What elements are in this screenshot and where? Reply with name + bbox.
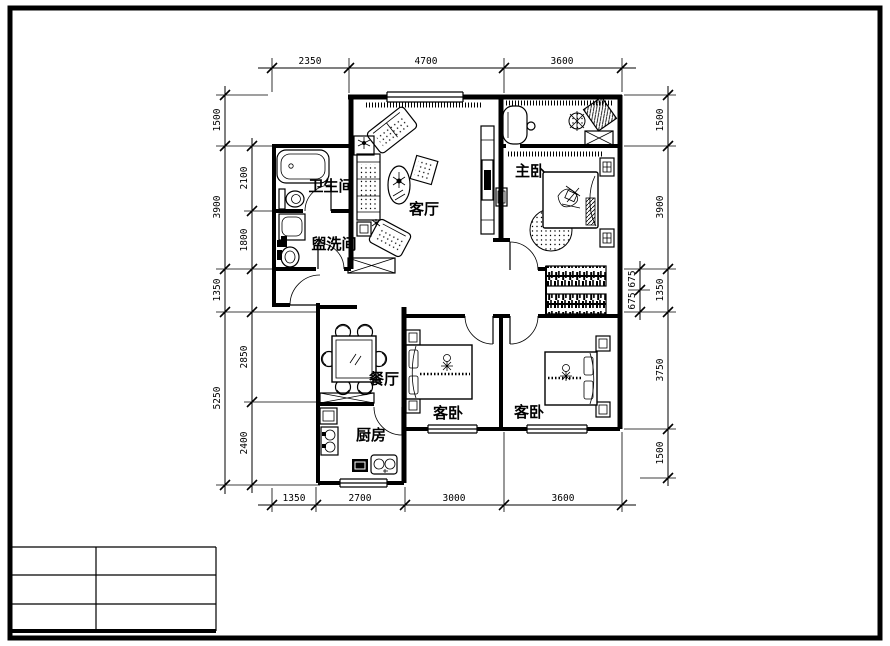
guest1-bed — [406, 345, 472, 399]
side-table-small — [357, 219, 380, 236]
room-label-bathroom: 卫生间 — [308, 177, 353, 195]
dim-label: 1350 — [212, 278, 223, 301]
wardrobe-row — [546, 266, 606, 286]
dim-label: 3000 — [443, 493, 466, 504]
dim-label: 1350 — [655, 278, 666, 301]
dim-label: 2850 — [239, 345, 250, 368]
toilet — [279, 189, 304, 209]
dim-label: 1500 — [655, 441, 666, 464]
master-bedroom-furniture — [496, 158, 614, 251]
dim-label: 3900 — [212, 195, 223, 218]
room-label-guest1: 客卧 — [432, 404, 463, 422]
room-label-dining: 餐厅 — [369, 370, 399, 388]
nightstand — [406, 330, 420, 345]
door-guest2 — [510, 316, 538, 344]
double-sink — [371, 455, 397, 474]
washing-machine — [279, 214, 305, 240]
nightstand — [600, 229, 614, 247]
room-label-living: 客厅 — [408, 200, 439, 218]
dim-label: 5250 — [212, 386, 223, 409]
counter-x — [320, 393, 374, 403]
drawing-sheet: 2350 4700 3600 1350 2700 3000 3600 1500 … — [0, 0, 890, 646]
dim-label: 1500 — [212, 108, 223, 131]
dim-label: 2700 — [349, 493, 372, 504]
dim-chain-right-inner: 675 675 — [627, 261, 650, 320]
nightstand — [600, 158, 614, 176]
wardrobes — [546, 266, 606, 314]
dim-label: 2350 — [299, 56, 322, 67]
side-table-plant — [354, 136, 374, 155]
dim-label: 3900 — [655, 195, 666, 218]
washbasin — [277, 240, 299, 267]
door-master — [510, 242, 538, 270]
dim-label: 1800 — [239, 228, 250, 251]
window-kitchen-bottom — [340, 479, 387, 487]
plant — [569, 111, 585, 131]
room-labels: 卫生间 盥洗间 客厅 主卧 餐厅 厨房 客卧 客卧 — [308, 162, 545, 444]
room-label-washroom: 盥洗间 — [311, 235, 356, 253]
sofa — [357, 154, 380, 220]
guest2-bed — [545, 352, 597, 405]
dim-label: 3600 — [552, 493, 575, 504]
dim-label: 3600 — [551, 56, 574, 67]
room-label-master: 主卧 — [515, 162, 545, 180]
washroom-fixtures — [277, 214, 305, 267]
coffee-table — [388, 166, 410, 204]
lounge-chair — [503, 106, 535, 144]
window-guest2-bottom — [527, 425, 587, 433]
dim-label: 4700 — [415, 56, 438, 67]
room-label-kitchen: 厨房 — [356, 426, 386, 444]
cabinet-x — [585, 131, 613, 145]
living-room-furniture — [348, 106, 494, 273]
title-block — [10, 547, 216, 631]
floor-plan-canvas: 2350 4700 3600 1350 2700 3000 3600 1500 … — [0, 0, 890, 646]
dim-chain-top: 2350 4700 3600 — [258, 56, 636, 93]
stove — [321, 427, 338, 455]
nightstand — [406, 398, 420, 413]
door-guest1 — [465, 316, 493, 344]
dim-label: 1500 — [655, 108, 666, 131]
appliance-dark — [352, 459, 368, 472]
door-entry — [290, 275, 320, 305]
dim-chain-bottom: 1350 2700 3000 3600 — [258, 432, 636, 512]
guest2-furniture — [545, 336, 610, 417]
dim-label: 3750 — [655, 358, 666, 381]
nightstand — [596, 402, 610, 417]
master-bed — [543, 172, 598, 228]
guest1-furniture — [406, 330, 472, 413]
dim-label: 675 — [627, 270, 638, 287]
ottoman — [410, 155, 438, 184]
window-living-top — [387, 92, 463, 102]
dim-label: 675 — [627, 292, 638, 309]
balcony-furniture — [503, 97, 616, 145]
dim-label: 1350 — [283, 493, 306, 504]
cabinet — [320, 408, 337, 424]
wardrobe-row — [546, 294, 606, 314]
shoe-cabinet — [348, 258, 395, 273]
room-label-guest2: 客卧 — [513, 403, 544, 421]
window-guest1-bottom — [428, 425, 477, 433]
tv-cabinet — [481, 126, 494, 234]
nightstand — [596, 336, 610, 351]
dim-label: 2400 — [239, 431, 250, 454]
dim-label: 2100 — [239, 166, 250, 189]
